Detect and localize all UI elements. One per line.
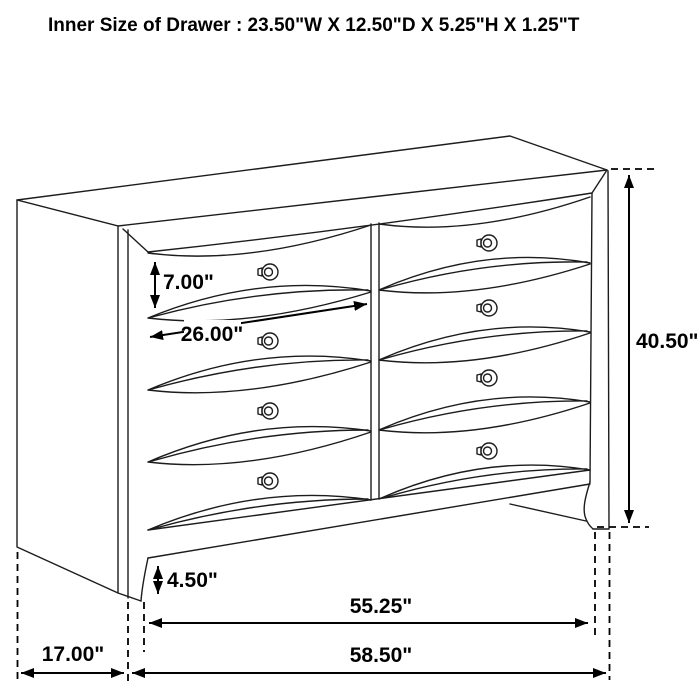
knob-icon [477, 370, 497, 386]
left-foot [118, 593, 141, 601]
dim-overall-width: 58.50" [132, 644, 606, 673]
right-foot [510, 482, 593, 529]
dresser-top-surface [17, 136, 607, 226]
center-divider [371, 223, 379, 500]
dim-side-depth: 17.00" [21, 643, 124, 673]
right-stile [590, 171, 609, 529]
dim-label-front-body-width: 55.25" [350, 595, 413, 618]
diagram-title: Inner Size of Drawer : 23.50"W X 12.50"D… [48, 15, 580, 36]
knob-icon [258, 403, 278, 419]
dresser-dimension-diagram: Inner Size of Drawer : 23.50"W X 12.50"D… [0, 0, 700, 700]
dimension-annotations: 7.00" 26.00" 40.50" 4.50" 17.00" 55.25" [18, 169, 699, 685]
dimension-diagram-page: Inner Size of Drawer : 23.50"W X 12.50"D… [0, 0, 700, 700]
dresser-side-panel [17, 200, 118, 593]
dim-label-overall-height: 40.50" [636, 330, 699, 353]
left-foot-cut [141, 558, 148, 601]
drawer-knobs [258, 235, 497, 489]
dim-label-drawer-front-height: 7.00" [163, 271, 214, 294]
dim-label-side-depth: 17.00" [42, 643, 105, 666]
knob-icon [477, 235, 497, 251]
dim-base-height: 4.50" [158, 566, 218, 594]
knob-icon [477, 443, 497, 459]
dim-overall-height: 40.50" [629, 175, 699, 523]
dim-label-drawer-opening-width: 26.00" [181, 323, 244, 346]
knob-icon [477, 300, 497, 316]
knob-icon [258, 333, 278, 349]
dim-label-overall-width: 58.50" [350, 644, 413, 667]
dim-top-drawer-height: 7.00" [155, 262, 214, 308]
knob-icon [258, 473, 278, 489]
knob-icon [258, 264, 278, 280]
dresser-drawing [17, 136, 609, 601]
dim-label-base-height: 4.50" [167, 569, 218, 592]
dim-front-body-width: 55.25" [149, 595, 588, 623]
